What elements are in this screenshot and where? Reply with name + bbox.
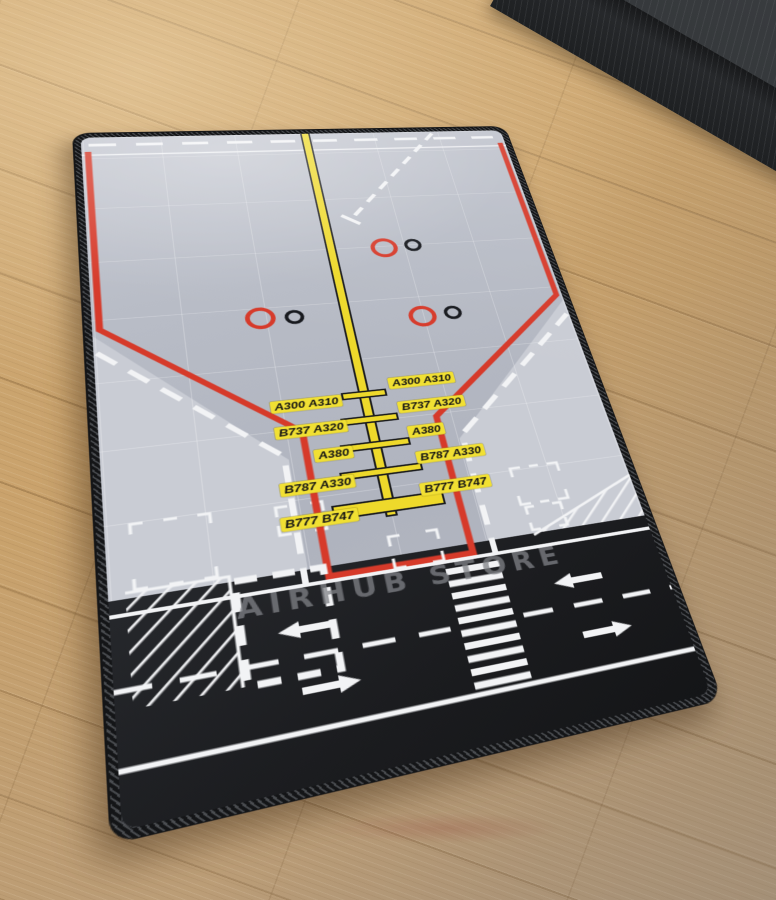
stand-lead-in-centerline [260, 131, 446, 524]
photo-scene: A300 A310 B737 A320 A380 B787 A330 B777 … [0, 0, 776, 900]
left-arrow-icon [552, 568, 604, 591]
left-arrow-icon [277, 615, 337, 642]
right-arrow-icon [581, 618, 635, 643]
road-markings [105, 474, 694, 772]
